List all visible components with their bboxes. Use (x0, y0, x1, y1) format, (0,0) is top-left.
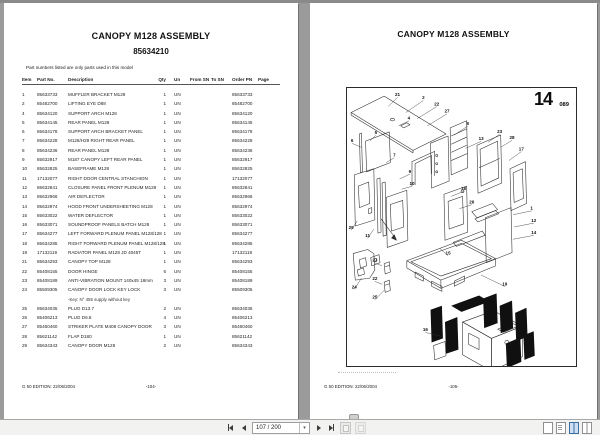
svg-text:25: 25 (372, 295, 378, 300)
svg-text:15: 15 (446, 251, 452, 256)
svg-text:24: 24 (352, 284, 358, 289)
table-row: 285482700LIFTING EYE D881UN85482700 (4, 99, 298, 108)
table-row: 2585634035PLUG D13.72UN85634035 (4, 304, 298, 313)
table-row: 785634228M128/H29 RIGHT REAR PANEL1UN856… (4, 136, 298, 145)
table-row: 1685633071SOUNDPROOF PANELS BATCH M1281U… (4, 220, 298, 229)
col-from-sn: From SN (190, 75, 209, 84)
next-view-icon[interactable] (355, 422, 366, 434)
svg-text:13: 13 (479, 136, 485, 141)
col-to-sn: To SN (211, 75, 224, 84)
svg-text:1: 1 (530, 206, 533, 211)
two-page-view-icon[interactable] (569, 422, 579, 434)
svg-text:21: 21 (395, 92, 401, 97)
col-order-pn: Order PN (232, 75, 252, 84)
table-row: 2485509305CANOPY DOOR LOCK KEY LOCK3UN85… (4, 285, 298, 294)
svg-text:23: 23 (497, 129, 503, 134)
table-row: 2385408189ANTI-VIBRATION MOUNT 140x45 18… (4, 276, 298, 285)
last-page-button[interactable] (327, 422, 336, 433)
col-page: Page (258, 75, 269, 84)
col-qty: Qty (152, 75, 166, 84)
page-number-footer: -104- (4, 384, 298, 389)
previous-view-icon[interactable] (340, 422, 351, 434)
diagram-callouts: 2122227481323281765791018261121429112427… (349, 92, 537, 336)
col-un: Un (174, 75, 180, 84)
table-row: 1585633022WATER DEFLECTOR1UN85633022 (4, 211, 298, 220)
svg-text:27: 27 (372, 258, 378, 263)
table-row: 1085632825BASEFRAME M1281UN85632825 (4, 164, 298, 173)
exploded-diagram-frame: 2122227481323281765791018261121429112427… (346, 87, 577, 367)
svg-text:11: 11 (365, 233, 370, 238)
svg-text:9: 9 (409, 169, 412, 174)
page-title: CANOPY M128 ASSEMBLY (310, 29, 597, 39)
watermark-mark (338, 372, 396, 373)
page-layout-controls (543, 422, 592, 433)
svg-text:7: 7 (393, 152, 396, 157)
table-row-note: -Key: N° 455 supply without key (4, 295, 298, 304)
table-row: 685634178SUPPORT ARCH BRACKET PANEL1UN85… (4, 127, 298, 136)
table-row: 1785634277LEFT FORWARD PLENUM PANEL M128… (4, 229, 298, 238)
previous-page-icon (242, 425, 246, 431)
single-page-view-icon[interactable] (543, 422, 553, 434)
svg-text:8: 8 (466, 121, 469, 126)
parts-table-rows: 185633733MUFFLER BRACKET M1281UN85633733… (4, 90, 298, 350)
svg-text:10: 10 (409, 181, 415, 186)
page-title: CANOPY M128 ASSEMBLY (4, 31, 298, 41)
svg-text:28: 28 (510, 135, 516, 140)
next-page-button[interactable] (314, 422, 323, 433)
svg-text:22: 22 (434, 101, 440, 106)
page-navigation: 107 / 200 ▾ (226, 420, 366, 435)
table-row: 885634236REAR PANEL M1281UN85634236 (4, 146, 298, 155)
svg-text:16: 16 (423, 327, 429, 332)
parts-table-header: Item Part No. Description Qty Un From SN… (4, 75, 298, 84)
table-row: 2285408155DOOR HINGE6UN85408155 (4, 267, 298, 276)
svg-text:17: 17 (519, 146, 525, 151)
table-header-rule (22, 84, 280, 85)
next-page-icon (317, 425, 321, 431)
col-item: Item (22, 75, 31, 84)
table-row: 1917132119RADIATOR PANEL M128 JD 4045T1U… (4, 248, 298, 257)
figure-code: 089 (559, 102, 569, 108)
svg-text:26: 26 (469, 200, 475, 205)
col-part-no: Part No. (37, 75, 55, 84)
svg-text:12: 12 (531, 218, 537, 223)
svg-text:6: 6 (351, 138, 354, 143)
continuous-view-icon[interactable] (556, 422, 566, 434)
page-number-box[interactable]: 107 / 200 ▾ (252, 422, 310, 434)
diagram-svg: 2122227481323281765791018261121429112427… (347, 88, 576, 366)
table-row: 1485632974HOOD FRONT UNDERSHEETING M1281… (4, 202, 298, 211)
figure-number: 14 (534, 89, 552, 110)
table-row: 2185634293CANOPY TOP M1281UN85634293 (4, 257, 298, 266)
two-page-continuous-view-icon[interactable] (582, 422, 592, 434)
previous-page-button[interactable] (239, 422, 248, 433)
page-indicator[interactable]: 107 / 200 (253, 425, 299, 431)
svg-text:19: 19 (502, 281, 508, 286)
svg-text:2: 2 (422, 95, 425, 100)
parts-note: Part numbers listed are only parts used … (26, 65, 133, 70)
svg-text:27: 27 (445, 109, 451, 114)
viewer-toolbar: 107 / 200 ▾ (0, 419, 600, 435)
svg-text:14: 14 (531, 230, 537, 235)
chevron-down-icon[interactable]: ▾ (299, 423, 309, 433)
assembly-number: 85634210 (4, 47, 298, 56)
table-row: 1117132077RIGHT DOOR CENTRAL STANCHION1U… (4, 174, 298, 183)
svg-text:22: 22 (372, 276, 378, 281)
table-row: 2885621142FLAP D1801UN85621142 (4, 332, 298, 341)
table-row: 185633733MUFFLER BRACKET M1281UN85633733 (4, 90, 298, 99)
table-row: 1285632841CLOSURE PANEL FRONT PLENUM M12… (4, 183, 298, 192)
table-row: 985632917M187 CANOPY LEFT REAR PANEL1UN8… (4, 155, 298, 164)
svg-text:4: 4 (408, 116, 411, 121)
table-row: 1885634285RIGHT FORWARD PLENUM PANEL M12… (4, 239, 298, 248)
svg-text:29: 29 (349, 225, 355, 230)
svg-text:18: 18 (461, 186, 467, 191)
table-row: 1385632966AIR DEFLECTOR1UN85632966 (4, 192, 298, 201)
pdf-page-left: CANOPY M128 ASSEMBLY 85634210 Part numbe… (4, 3, 298, 419)
col-description: Description (68, 75, 93, 84)
table-row: 2785460460STRIKER PLATE M408 CANOPY DOOR… (4, 322, 298, 331)
table-row: 2985634343CANOPY DOOR M1282UN85634343 (4, 341, 298, 350)
table-row: 485634120SUPPORT ARCH M1281UN85634120 (4, 109, 298, 118)
first-page-button[interactable] (226, 422, 235, 433)
pdf-page-right: CANOPY M128 ASSEMBLY (310, 3, 597, 419)
table-row: 2685406213PLUG D6.84UN85406213 (4, 313, 298, 322)
table-row: 585634145REAR PANEL M1281UN85634145 (4, 118, 298, 127)
page-number-footer: -105- (310, 384, 597, 389)
